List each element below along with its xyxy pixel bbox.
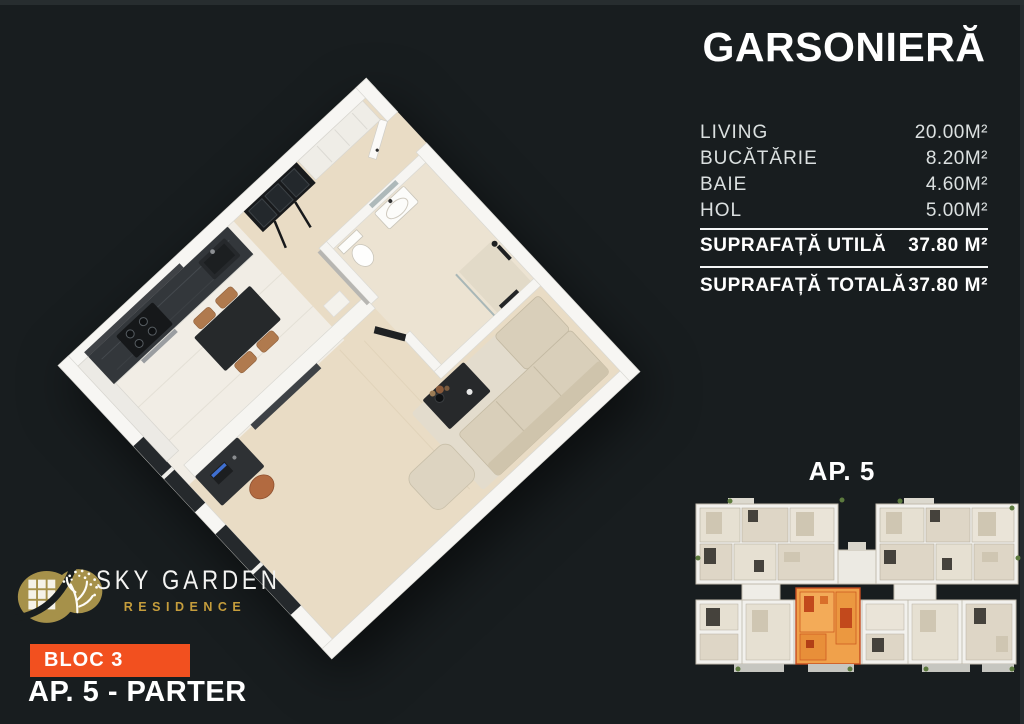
divider-line <box>700 266 988 268</box>
total-useful-row: SUPRAFAȚĂ UTILĂ 37.80 M² <box>700 234 988 258</box>
keyplan-apartment-label: AP. 5 <box>780 456 904 487</box>
page-title: GARSONIERĂ <box>698 24 990 78</box>
total-label: SUPRAFAȚĂ UTILĂ <box>700 235 886 257</box>
room-label: BAIE <box>700 174 747 196</box>
brand-subtitle: RESIDENCE <box>96 600 274 614</box>
table-row: LIVING 20.00M² <box>700 120 988 146</box>
room-value: 8.20M² <box>926 148 988 170</box>
total-overall-row: SUPRAFAȚĂ TOTALĂ 37.80 M² <box>700 274 988 298</box>
room-label: LIVING <box>700 122 768 144</box>
logo-blob-icon <box>16 564 102 623</box>
room-value: 4.60M² <box>926 174 988 196</box>
keyplan-core <box>742 584 780 602</box>
keyplan-left-wing <box>696 498 838 584</box>
keyplan-right-wing <box>876 498 1018 584</box>
total-value: 37.80 M² <box>908 275 988 297</box>
keyplan-highlighted-apartment <box>796 588 860 664</box>
brochure-page: GARSONIERĂ LIVING 20.00M² BUCĂTĂRIE 8.20… <box>0 0 1024 724</box>
room-value: 20.00M² <box>915 122 988 144</box>
total-value: 37.80 M² <box>908 235 988 257</box>
keyplan-lobby <box>838 550 876 584</box>
brand-name: SKY GARDEN <box>96 564 269 596</box>
table-row: HOL 5.00M² <box>700 198 988 224</box>
table-row: BUCĂTĂRIE 8.20M² <box>700 146 988 172</box>
room-value: 5.00M² <box>926 200 988 222</box>
keyplan-balconies <box>734 664 1014 672</box>
table-row: BAIE 4.60M² <box>700 172 988 198</box>
building-key-plan <box>690 496 1024 676</box>
total-label: SUPRAFAȚĂ TOTALĂ <box>700 275 906 297</box>
room-area-table: LIVING 20.00M² BUCĂTĂRIE 8.20M² BAIE 4.6… <box>700 120 988 224</box>
room-label: HOL <box>700 200 742 222</box>
apartment-floor-label: AP. 5 - PARTER <box>28 676 348 709</box>
block-badge: BLOC 3 <box>30 644 190 677</box>
room-label: BUCĂTĂRIE <box>700 148 818 170</box>
top-edge-strip <box>0 0 1024 5</box>
keyplan-core <box>894 584 936 602</box>
divider-line <box>700 228 988 230</box>
